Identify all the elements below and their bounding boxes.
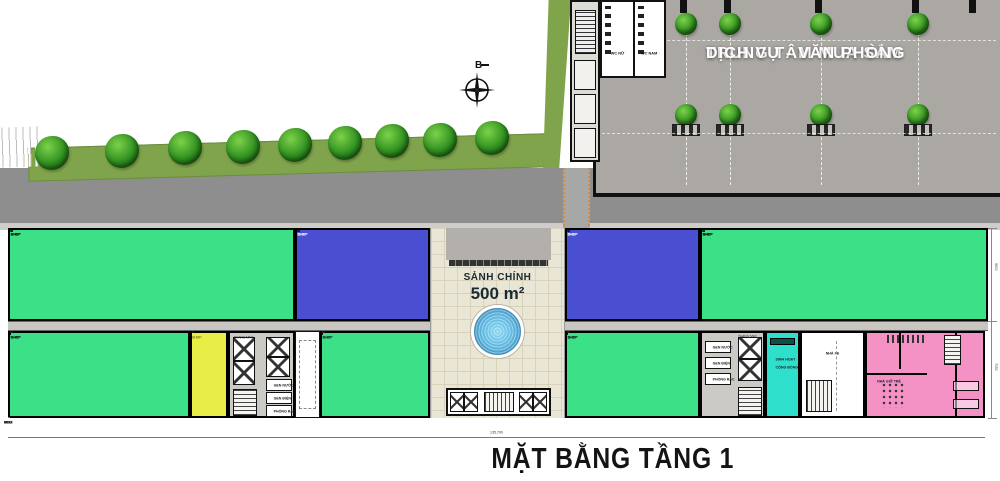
residential-strip: THANG MÁY GEN NƯỚC GEN ĐIỆN PHÒNG RÁC GE… [0,0,1000,481]
water-room: GEN NƯỚC [266,379,292,391]
shelf-hatch-icon [887,335,927,343]
elevator-icon [450,392,464,412]
lobby-name: SẢNH CHÍNH [431,272,564,283]
dimension-segment: 6000 [8,417,9,418]
stairs-icon [738,387,762,416]
dashed-outline [836,341,837,411]
bed-icon [192,331,194,333]
desk-icon [953,399,979,409]
bed-icon [11,331,13,333]
yellow-unit-group: SHOP [190,331,228,418]
bike-room-label: NHÀ XE [819,351,846,355]
water-room: GEN NƯỚC [705,341,731,353]
green-unit-group: SHOPSHOPSHOPSHOPSHOPSHOPSHOPSHOP [700,228,988,321]
community-label-line2: CỘNG ĐỒNG [776,365,790,369]
stairs-icon [233,389,257,416]
fountain [471,305,524,358]
entrance-pad [446,228,551,260]
right-dimension-label: 9500 [994,263,998,270]
floor-plan-page: TRUNG TÂM MUA SẮM DỊCH VỤ - VĂN PHÒNG WC… [0,0,1000,481]
dimension-total: 135,700 [8,429,985,438]
stairs-icon [484,392,514,412]
counter-icon [770,338,795,345]
bed-icon [323,331,325,333]
elevator-label: THANG MÁY [234,336,253,340]
core-right: GEN NƯỚC GEN ĐIỆN PHÒNG RÁC THANG MÁY [700,331,765,418]
green-unit-group: SHOPSHOPSHOP [320,331,430,418]
corridor [565,321,988,331]
right-dimension-label: 7050 [994,363,998,370]
utility-room [295,331,320,418]
elevator-icon [233,361,255,385]
dimension-tick [988,418,997,419]
corridor [8,321,430,331]
stairs-icon [806,380,832,412]
bathroom-icon [701,228,703,230]
green-unit-group: SHOPSHOPSHOPSHOPSHOPSHOPSHOPSHOP [8,228,295,321]
main-lobby: SẢNH CHÍNH 500 m² [430,228,565,418]
daycare-label: NHÀ GIỮ TRẺ [871,379,907,383]
elevator-icon [464,392,478,412]
elevator-icon [533,392,547,412]
bathroom-icon [296,228,298,230]
dimension-row: 9550940094004700940094009500850058008500… [8,417,985,427]
dimension-tick [988,321,997,322]
elevator-icon [519,392,533,412]
stairs-icon [944,335,961,365]
community-label-line1: SINH HOẠT [776,357,790,361]
blue-unit-group: SHOPSHOPSHOPSHOP [295,228,430,321]
blue-unit-group: SHOPSHOPSHOPSHOP [565,228,700,321]
entrance-mat [449,260,548,266]
lobby-area: 500 m² [431,284,564,304]
bathroom-icon [9,228,11,230]
trash-room: PHÒNG RÁC [705,373,731,385]
elevator-icon [266,337,290,357]
green-unit-group: SHOPSHOPSHOPSHOPSHOP [8,331,190,418]
elevator-icon [266,357,290,377]
daycare-room: NHÀ GIỮ TRẺ [865,331,985,418]
desk-icon [953,381,979,391]
bike-room: NHÀ XE [800,331,865,418]
trash-room: PHÒNG RÁC [266,405,292,417]
elevator-label: THANG MÁY [738,335,757,339]
electric-room: GEN ĐIỆN [705,357,731,369]
core-left: THANG MÁY GEN NƯỚC GEN ĐIỆN PHÒNG RÁC [228,331,295,418]
dashed-outline [299,340,316,409]
community-room: SINH HOẠT CỘNG ĐỒNG [765,331,800,418]
bed-icon [568,331,570,333]
chairs-icon [881,382,905,408]
elevator-icon [738,359,762,381]
lobby-core [446,388,551,416]
green-unit-group: SHOPSHOPSHOPSHOP [565,331,700,418]
right-dimension-line: 9500 7050 [991,228,992,418]
elevator-icon [738,337,762,359]
bathroom-icon [566,228,568,230]
electric-room: GEN ĐIỆN [266,392,292,404]
wall [867,373,927,375]
dimension-total-label: 135,700 [490,430,503,434]
dimension-tick [988,228,997,229]
dimension-label: 6000 [4,420,12,424]
elevator-icon [233,337,255,361]
